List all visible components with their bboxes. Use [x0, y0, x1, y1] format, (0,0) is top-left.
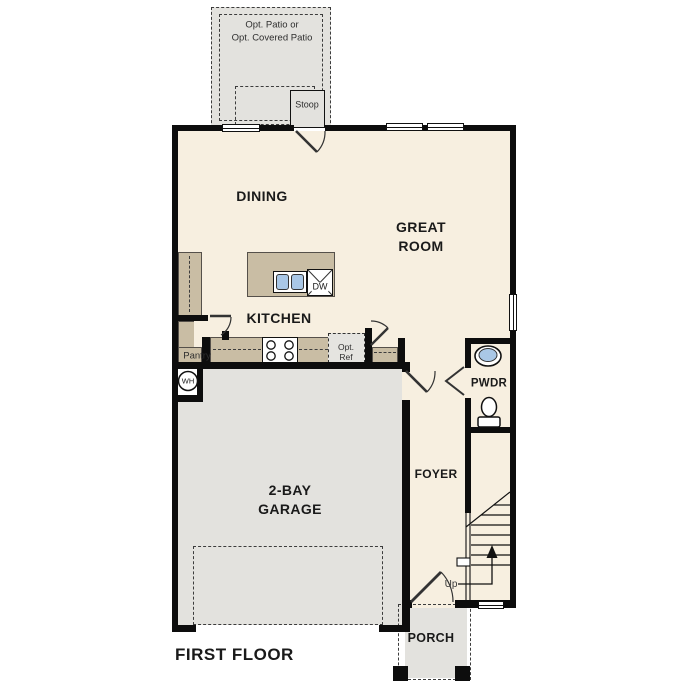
window	[478, 601, 504, 609]
garage-label-line2: GARAGE	[258, 502, 322, 516]
wall	[402, 600, 412, 608]
patio-label-line2: Opt. Covered Patio	[232, 33, 313, 43]
kitchen-label: KITCHEN	[246, 311, 311, 325]
window	[222, 124, 260, 132]
wall	[365, 328, 372, 368]
foyer-label: FOYER	[415, 468, 458, 480]
porch-post	[455, 666, 470, 681]
island-sink-basin-left	[276, 274, 289, 290]
dining-label: DINING	[236, 189, 287, 203]
stoop-label: Stoop	[295, 101, 319, 110]
window	[427, 123, 464, 131]
pantry-cabinet-dashline	[189, 256, 190, 312]
counter-dashline-left	[213, 349, 261, 350]
wall	[172, 315, 208, 321]
wall	[465, 433, 471, 513]
porch-post	[393, 666, 408, 681]
wall	[465, 398, 471, 433]
stairs-up-label: Up	[445, 580, 458, 590]
pantry-cabinet-strip	[178, 252, 202, 316]
wall	[379, 625, 410, 632]
wall	[402, 400, 410, 632]
porch-label: PORCH	[408, 632, 455, 645]
page-title: FIRST FLOOR	[175, 645, 294, 665]
bench-dashline	[374, 352, 396, 353]
wall	[465, 338, 516, 344]
great-room-label-line2: ROOM	[398, 239, 443, 253]
stove	[262, 337, 298, 363]
wall	[465, 338, 471, 368]
window	[386, 123, 423, 131]
wall	[222, 331, 229, 340]
window	[509, 294, 517, 331]
wall	[510, 125, 516, 608]
wall	[172, 395, 203, 402]
floor-plan: Opt. Patio or Opt. Covered Patio Stoop D…	[0, 0, 687, 687]
garage-door-clearance	[193, 546, 383, 625]
wall	[172, 625, 196, 632]
counter-dashline-right	[299, 349, 328, 350]
patio-label-line1: Opt. Patio or	[245, 20, 298, 30]
wall	[465, 427, 516, 433]
wall	[172, 125, 178, 632]
great-room-label-line1: GREAT	[396, 220, 446, 234]
island-sink-basin-right	[291, 274, 304, 290]
garage-label-line1: 2-BAY	[269, 483, 312, 497]
water-heater-label: WH	[182, 377, 195, 385]
wall	[398, 338, 405, 368]
powder-room-label: PWDR	[471, 378, 507, 390]
pantry-label: Pantry	[183, 351, 210, 361]
opt-ref-label-line1: Opt.	[338, 343, 354, 352]
dishwasher-label: DW	[312, 283, 329, 292]
opt-ref-label-line2: Ref	[339, 353, 352, 362]
